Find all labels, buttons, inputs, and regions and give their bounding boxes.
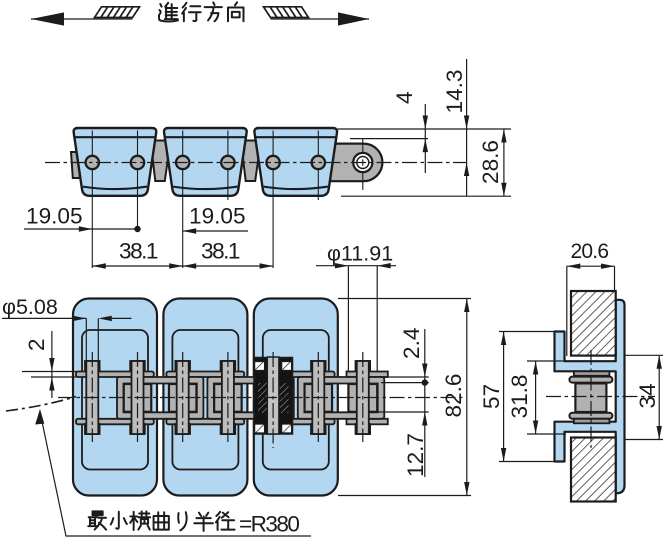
svg-text:2: 2 [24, 338, 49, 351]
svg-text:14.3: 14.3 [442, 70, 467, 114]
svg-text:57: 57 [479, 384, 504, 409]
svg-text:34: 34 [635, 383, 660, 408]
svg-text:28.6: 28.6 [478, 140, 503, 184]
svg-text:2.4: 2.4 [399, 328, 424, 359]
svg-text:31.8: 31.8 [507, 375, 532, 419]
svg-text:38.1: 38.1 [119, 239, 159, 264]
svg-text:φ11.91: φ11.91 [327, 242, 393, 266]
svg-text:38.1: 38.1 [201, 239, 241, 264]
svg-text:20.6: 20.6 [571, 240, 610, 263]
svg-text:19.05: 19.05 [26, 204, 83, 229]
svg-text:φ5.08: φ5.08 [2, 295, 58, 319]
svg-text:4: 4 [392, 91, 417, 104]
svg-text:=R380: =R380 [239, 512, 300, 537]
svg-text:82.6: 82.6 [441, 374, 466, 418]
svg-text:19.05: 19.05 [189, 204, 246, 229]
